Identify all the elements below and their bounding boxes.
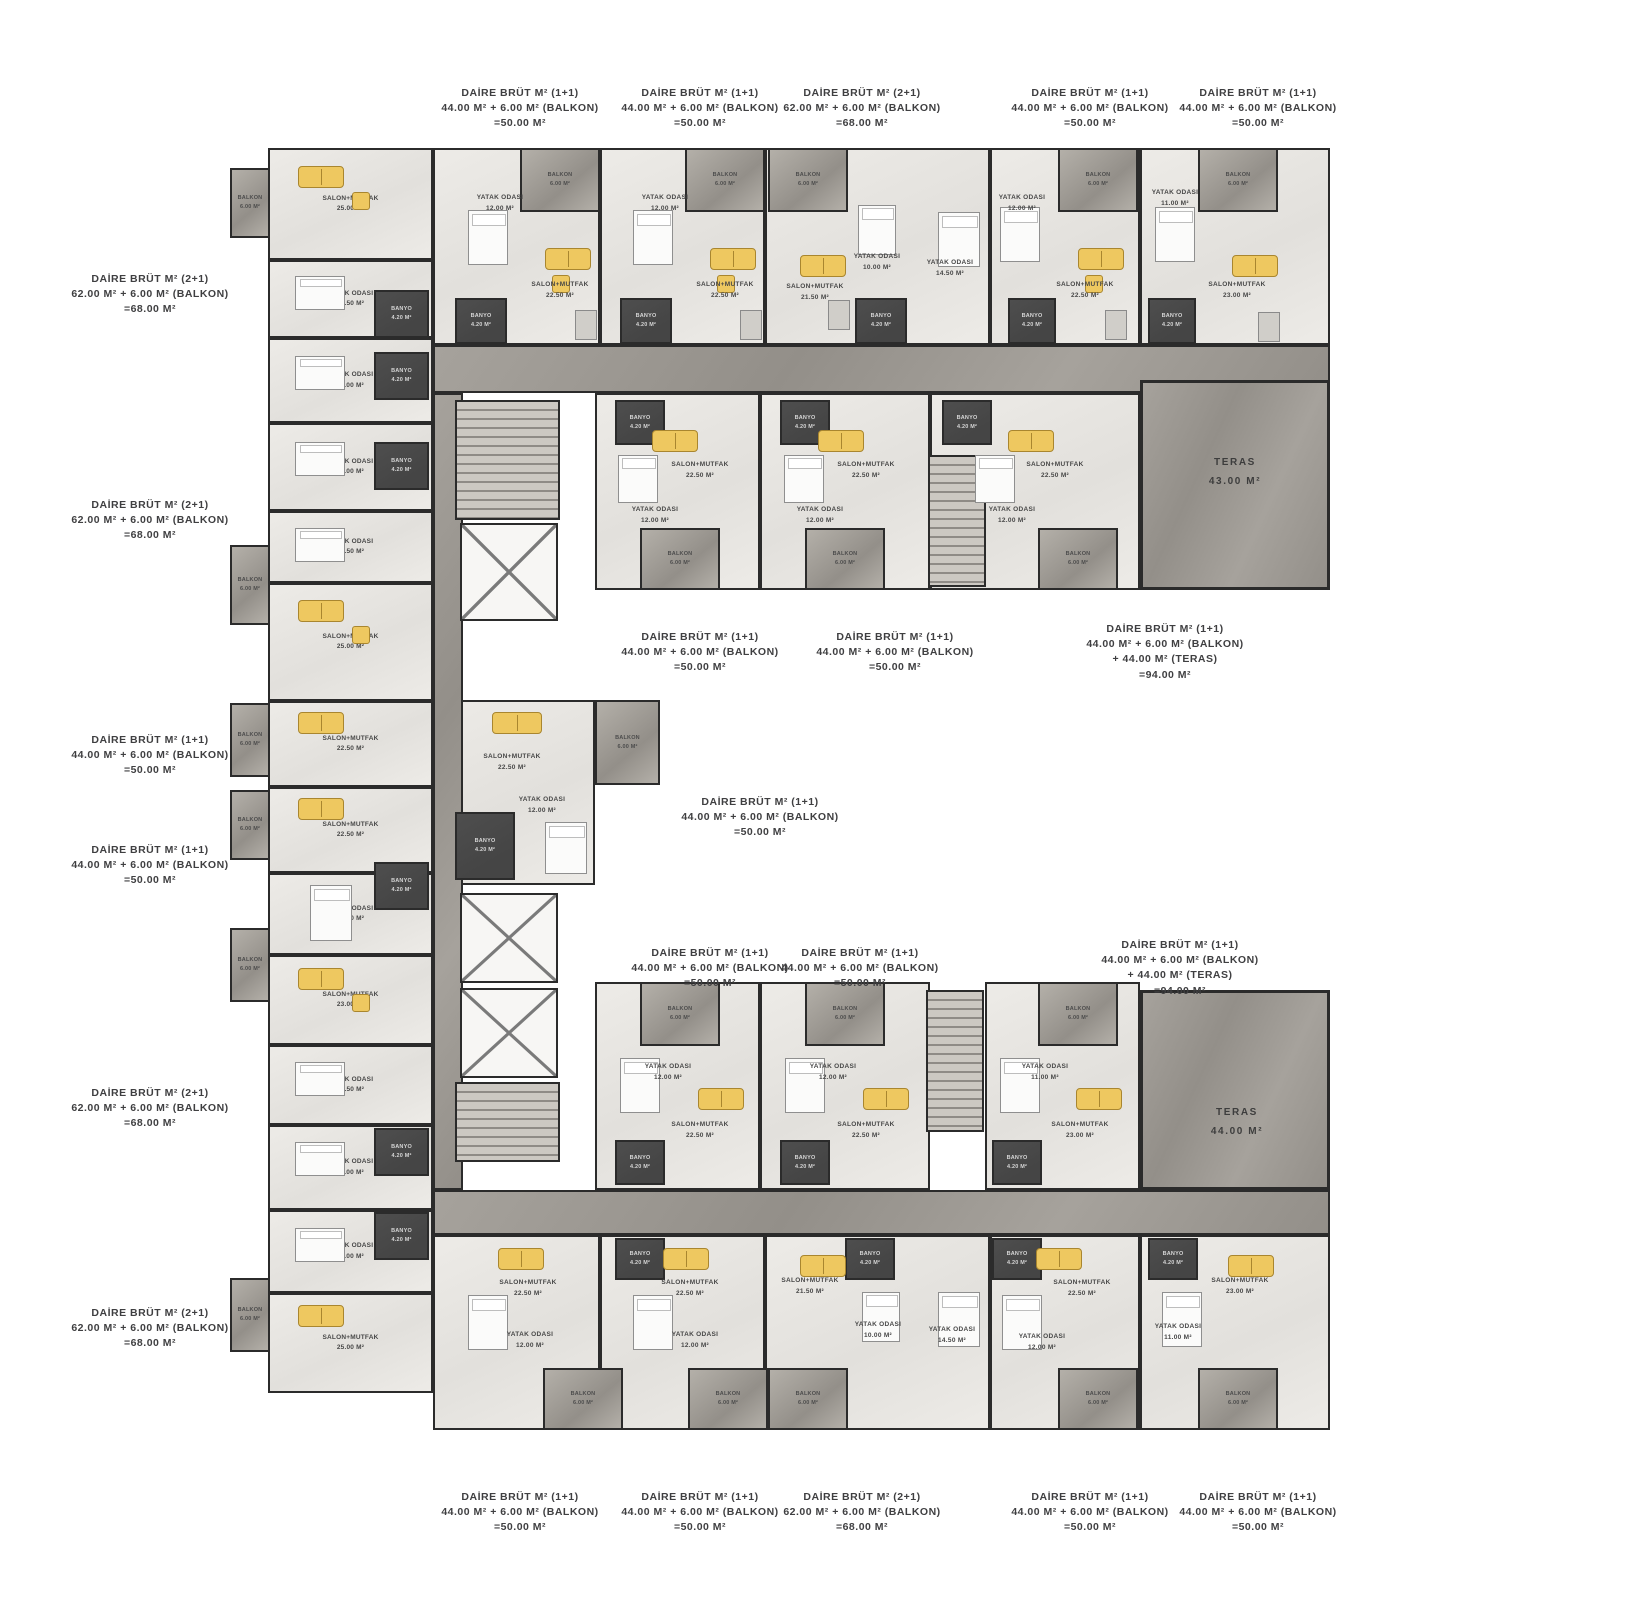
room-label: BALKON 6.00 M² (1060, 1370, 1136, 1428)
area-annotation: DAİRE BRÜT M² (1+1) 44.00 M² + 6.00 M² (… (71, 843, 228, 889)
balcony: BALKON 6.00 M² (543, 1368, 623, 1430)
elevator-icon (460, 523, 558, 621)
room-label: BANYO 4.20 M² (622, 300, 670, 342)
bathroom: BANYO 4.20 M² (1148, 298, 1196, 344)
area-annotation: DAİRE BRÜT M² (2+1) 62.00 M² + 6.00 M² (… (71, 1086, 228, 1132)
bed-icon (468, 1295, 508, 1350)
room-label: BALKON 6.00 M² (232, 547, 268, 623)
room-label: BALKON 6.00 M² (1200, 1370, 1276, 1428)
bed-icon (545, 822, 587, 874)
room-label: BALKON 6.00 M² (522, 150, 598, 210)
elevator-icon (460, 893, 558, 983)
armchair-icon (717, 275, 735, 293)
area-annotation: DAİRE BRÜT M² (1+1) 44.00 M² + 6.00 M² (… (621, 86, 778, 132)
sofa-icon (1036, 1248, 1082, 1270)
balcony: BALKON 6.00 M² (230, 545, 270, 625)
armchair-icon (552, 275, 570, 293)
bed-icon (938, 1292, 980, 1347)
bathroom: BANYO 4.20 M² (615, 1140, 665, 1185)
area-annotation: DAİRE BRÜT M² (1+1) 44.00 M² + 6.00 M² (… (1086, 622, 1243, 683)
area-annotation: DAİRE BRÜT M² (1+1) 44.00 M² + 6.00 M² (… (441, 86, 598, 132)
bed-icon (295, 1142, 345, 1176)
balcony: BALKON 6.00 M² (595, 700, 660, 785)
room-label: BANYO 4.20 M² (847, 1240, 893, 1278)
room-label: BALKON 6.00 M² (232, 705, 268, 775)
bed-icon (862, 1292, 900, 1342)
balcony: BALKON 6.00 M² (1038, 528, 1118, 590)
bathroom: BANYO 4.20 M² (620, 298, 672, 344)
sofa-icon (863, 1088, 909, 1110)
area-annotation: DAİRE BRÜT M² (1+1) 44.00 M² + 6.00 M² (… (781, 946, 938, 992)
bed-icon (618, 455, 658, 503)
room-block: YATAK ODASI 10.50 M² (268, 1045, 433, 1125)
room-label: SALON+MUTFAK 25.00 M² (270, 150, 431, 258)
corridor (433, 1190, 1330, 1235)
sofa-icon (710, 248, 756, 270)
bed-icon (310, 885, 352, 941)
area-annotation: DAİRE BRÜT M² (1+1) 44.00 M² + 6.00 M² (… (71, 733, 228, 779)
room-label: BALKON 6.00 M² (770, 1370, 846, 1428)
bed-icon (1000, 1058, 1040, 1113)
bathroom: BANYO 4.20 M² (992, 1140, 1042, 1185)
area-annotation: DAİRE BRÜT M² (2+1) 62.00 M² + 6.00 M² (… (71, 1306, 228, 1352)
room-block: SALON+MUTFAK 23.00 M² (268, 955, 433, 1045)
area-annotation: DAİRE BRÜT M² (1+1) 44.00 M² + 6.00 M² (… (441, 1490, 598, 1536)
bed-icon (620, 1058, 660, 1113)
sofa-icon (498, 1248, 544, 1270)
area-annotation: DAİRE BRÜT M² (1+1) 44.00 M² + 6.00 M² (… (1101, 938, 1258, 999)
balcony: BALKON 6.00 M² (230, 790, 270, 860)
bathroom: BANYO 4.20 M² (374, 1212, 429, 1260)
bathroom: BANYO 4.20 M² (942, 400, 992, 445)
room-label: BANYO 4.20 M² (994, 1240, 1040, 1278)
sofa-icon (1078, 248, 1124, 270)
sofa-icon (1228, 1255, 1274, 1277)
bed-icon (858, 205, 896, 255)
room-label: BALKON 6.00 M² (807, 530, 883, 588)
room-label: BALKON 6.00 M² (232, 170, 268, 236)
table-icon (828, 300, 850, 330)
bed-icon (468, 210, 508, 265)
sofa-icon (545, 248, 591, 270)
bed-icon (295, 1228, 345, 1262)
room-block: YATAK ODASI 10.50 M² (268, 511, 433, 583)
room-label: BANYO 4.20 M² (782, 1142, 828, 1183)
bathroom: BANYO 4.20 M² (845, 1238, 895, 1280)
sofa-icon (800, 255, 846, 277)
bed-icon (295, 1062, 345, 1096)
area-annotation: DAİRE BRÜT M² (2+1) 62.00 M² + 6.00 M² (… (783, 1490, 940, 1536)
sofa-icon (298, 1305, 344, 1327)
bathroom: BANYO 4.20 M² (1148, 1238, 1198, 1280)
room-label: BANYO 4.20 M² (376, 864, 427, 908)
bathroom: BANYO 4.20 M² (374, 1128, 429, 1176)
room-label: BANYO 4.20 M² (944, 402, 990, 443)
sofa-icon (698, 1088, 744, 1110)
area-annotation: DAİRE BRÜT M² (1+1) 44.00 M² + 6.00 M² (… (1179, 86, 1336, 132)
room-label: BANYO 4.20 M² (994, 1142, 1040, 1183)
room-block: SALON+MUTFAK 22.50 M² (268, 701, 433, 787)
table-icon (575, 310, 597, 340)
bed-icon (785, 1058, 825, 1113)
room-label: BANYO 4.20 M² (1150, 300, 1194, 342)
room-label: SALON+MUTFAK 25.00 M² (270, 585, 431, 699)
bed-icon (938, 212, 980, 267)
bed-icon (1155, 207, 1195, 262)
bathroom: BANYO 4.20 M² (455, 298, 507, 344)
room-label: BANYO 4.20 M² (376, 1214, 427, 1258)
room-label: BANYO 4.20 M² (376, 354, 427, 398)
room-label: BANYO 4.20 M² (1010, 300, 1054, 342)
room-label: SALON+MUTFAK 25.00 M² (270, 1295, 431, 1391)
room-label: BALKON 6.00 M² (232, 1280, 268, 1350)
sofa-icon (298, 166, 344, 188)
room-label: BALKON 6.00 M² (545, 1370, 621, 1428)
bed-icon (1002, 1295, 1042, 1350)
bathroom: BANYO 4.20 M² (374, 290, 429, 338)
armchair-icon (352, 192, 370, 210)
sofa-icon (818, 430, 864, 452)
terrace (1140, 380, 1330, 590)
table-icon (740, 310, 762, 340)
room-label: BALKON 6.00 M² (1060, 150, 1136, 210)
bed-icon (633, 1295, 673, 1350)
balcony: BALKON 6.00 M² (230, 703, 270, 777)
balcony: BALKON 6.00 M² (230, 928, 270, 1002)
room-block: SALON+MUTFAK 25.00 M² (268, 583, 433, 701)
room-block: SALON+MUTFAK 25.00 M² (268, 1293, 433, 1393)
area-annotation: DAİRE BRÜT M² (1+1) 44.00 M² + 6.00 M² (… (816, 630, 973, 676)
bed-icon (975, 455, 1015, 503)
stairs-icon (455, 1082, 560, 1162)
balcony: BALKON 6.00 M² (1058, 148, 1138, 212)
room-block: SALON+MUTFAK 22.50 M² (268, 787, 433, 873)
room-label: BALKON 6.00 M² (642, 530, 718, 588)
bed-icon (295, 276, 345, 310)
bathroom: BANYO 4.20 M² (374, 352, 429, 400)
room-block: SALON+MUTFAK 25.00 M² (268, 148, 433, 260)
bed-icon (784, 455, 824, 503)
room-label: BALKON 6.00 M² (1040, 530, 1116, 588)
bathroom: BANYO 4.20 M² (374, 862, 429, 910)
room-label: BANYO 4.20 M² (457, 814, 513, 878)
bed-icon (295, 442, 345, 476)
table-icon (1105, 310, 1127, 340)
room-label: BALKON 6.00 M² (597, 702, 658, 783)
room-label: BALKON 6.00 M² (690, 1370, 766, 1428)
sofa-icon (663, 1248, 709, 1270)
sofa-icon (298, 798, 344, 820)
room-label: BANYO 4.20 M² (1150, 1240, 1196, 1278)
area-annotation: DAİRE BRÜT M² (1+1) 44.00 M² + 6.00 M² (… (621, 1490, 778, 1536)
sofa-icon (298, 712, 344, 734)
stairs-icon (455, 400, 560, 520)
bathroom: BANYO 4.20 M² (1008, 298, 1056, 344)
bathroom: BANYO 4.20 M² (992, 1238, 1042, 1280)
room-label: BALKON 6.00 M² (642, 984, 718, 1044)
area-annotation: DAİRE BRÜT M² (1+1) 44.00 M² + 6.00 M² (… (1011, 86, 1168, 132)
bathroom: BANYO 4.20 M² (615, 1238, 665, 1280)
bed-icon (1000, 207, 1040, 262)
balcony: BALKON 6.00 M² (685, 148, 765, 212)
room-label: BANYO 4.20 M² (617, 1240, 663, 1278)
room-label: BALKON 6.00 M² (770, 150, 846, 210)
balcony: BALKON 6.00 M² (1198, 1368, 1278, 1430)
balcony: BALKON 6.00 M² (230, 168, 270, 238)
stairs-icon (926, 990, 984, 1132)
area-annotation: DAİRE BRÜT M² (1+1) 44.00 M² + 6.00 M² (… (681, 795, 838, 841)
area-annotation: DAİRE BRÜT M² (2+1) 62.00 M² + 6.00 M² (… (71, 498, 228, 544)
area-annotation: DAİRE BRÜT M² (1+1) 44.00 M² + 6.00 M² (… (621, 630, 778, 676)
sofa-icon (1232, 255, 1278, 277)
sofa-icon (1008, 430, 1054, 452)
room-label: BALKON 6.00 M² (687, 150, 763, 210)
area-annotation: DAİRE BRÜT M² (1+1) 44.00 M² + 6.00 M² (… (1011, 1490, 1168, 1536)
balcony: BALKON 6.00 M² (230, 1278, 270, 1352)
balcony: BALKON 6.00 M² (768, 148, 848, 212)
floorplan-page: { "colors": { "wall": "#2b2b2b", "room":… (0, 0, 1636, 1600)
terrace (1140, 990, 1330, 1190)
bathroom: BANYO 4.20 M² (855, 298, 907, 344)
sofa-icon (298, 968, 344, 990)
bathroom: BANYO 4.20 M² (374, 442, 429, 490)
balcony: BALKON 6.00 M² (520, 148, 600, 212)
table-icon (1258, 312, 1280, 342)
room-label: BANYO 4.20 M² (376, 292, 427, 336)
armchair-icon (1085, 275, 1103, 293)
balcony: BALKON 6.00 M² (1198, 148, 1278, 212)
sofa-icon (1076, 1088, 1122, 1110)
balcony: BALKON 6.00 M² (768, 1368, 848, 1430)
sofa-icon (800, 1255, 846, 1277)
armchair-icon (352, 626, 370, 644)
sofa-icon (652, 430, 698, 452)
bathroom: BANYO 4.20 M² (780, 1140, 830, 1185)
room-label: BANYO 4.20 M² (376, 1130, 427, 1174)
sofa-icon (298, 600, 344, 622)
room-label: BALKON 6.00 M² (1200, 150, 1276, 210)
bathroom: BANYO 4.20 M² (455, 812, 515, 880)
room-label: BALKON 6.00 M² (232, 792, 268, 858)
balcony: BALKON 6.00 M² (805, 528, 885, 590)
bed-icon (633, 210, 673, 265)
area-annotation: DAİRE BRÜT M² (1+1) 44.00 M² + 6.00 M² (… (1179, 1490, 1336, 1536)
room-label: BALKON 6.00 M² (807, 984, 883, 1044)
room-label: SALON+MUTFAK 22.50 M² (270, 789, 431, 871)
balcony: BALKON 6.00 M² (640, 528, 720, 590)
area-annotation: DAİRE BRÜT M² (2+1) 62.00 M² + 6.00 M² (… (71, 272, 228, 318)
room-label: BANYO 4.20 M² (457, 300, 505, 342)
room-label: BANYO 4.20 M² (376, 444, 427, 488)
balcony: BALKON 6.00 M² (1058, 1368, 1138, 1430)
room-label: BANYO 4.20 M² (617, 1142, 663, 1183)
bed-icon (1162, 1292, 1202, 1347)
bed-icon (295, 356, 345, 390)
area-annotation: DAİRE BRÜT M² (2+1) 62.00 M² + 6.00 M² (… (783, 86, 940, 132)
bed-icon (295, 528, 345, 562)
room-label: SALON+MUTFAK 22.50 M² (270, 703, 431, 785)
room-label: BANYO 4.20 M² (857, 300, 905, 342)
elevator-icon (460, 988, 558, 1078)
armchair-icon (352, 994, 370, 1012)
sofa-icon (492, 712, 542, 734)
area-annotation: DAİRE BRÜT M² (1+1) 44.00 M² + 6.00 M² (… (631, 946, 788, 992)
room-label: SALON+MUTFAK 23.00 M² (270, 957, 431, 1043)
room-label: BALKON 6.00 M² (232, 930, 268, 1000)
balcony: BALKON 6.00 M² (688, 1368, 768, 1430)
